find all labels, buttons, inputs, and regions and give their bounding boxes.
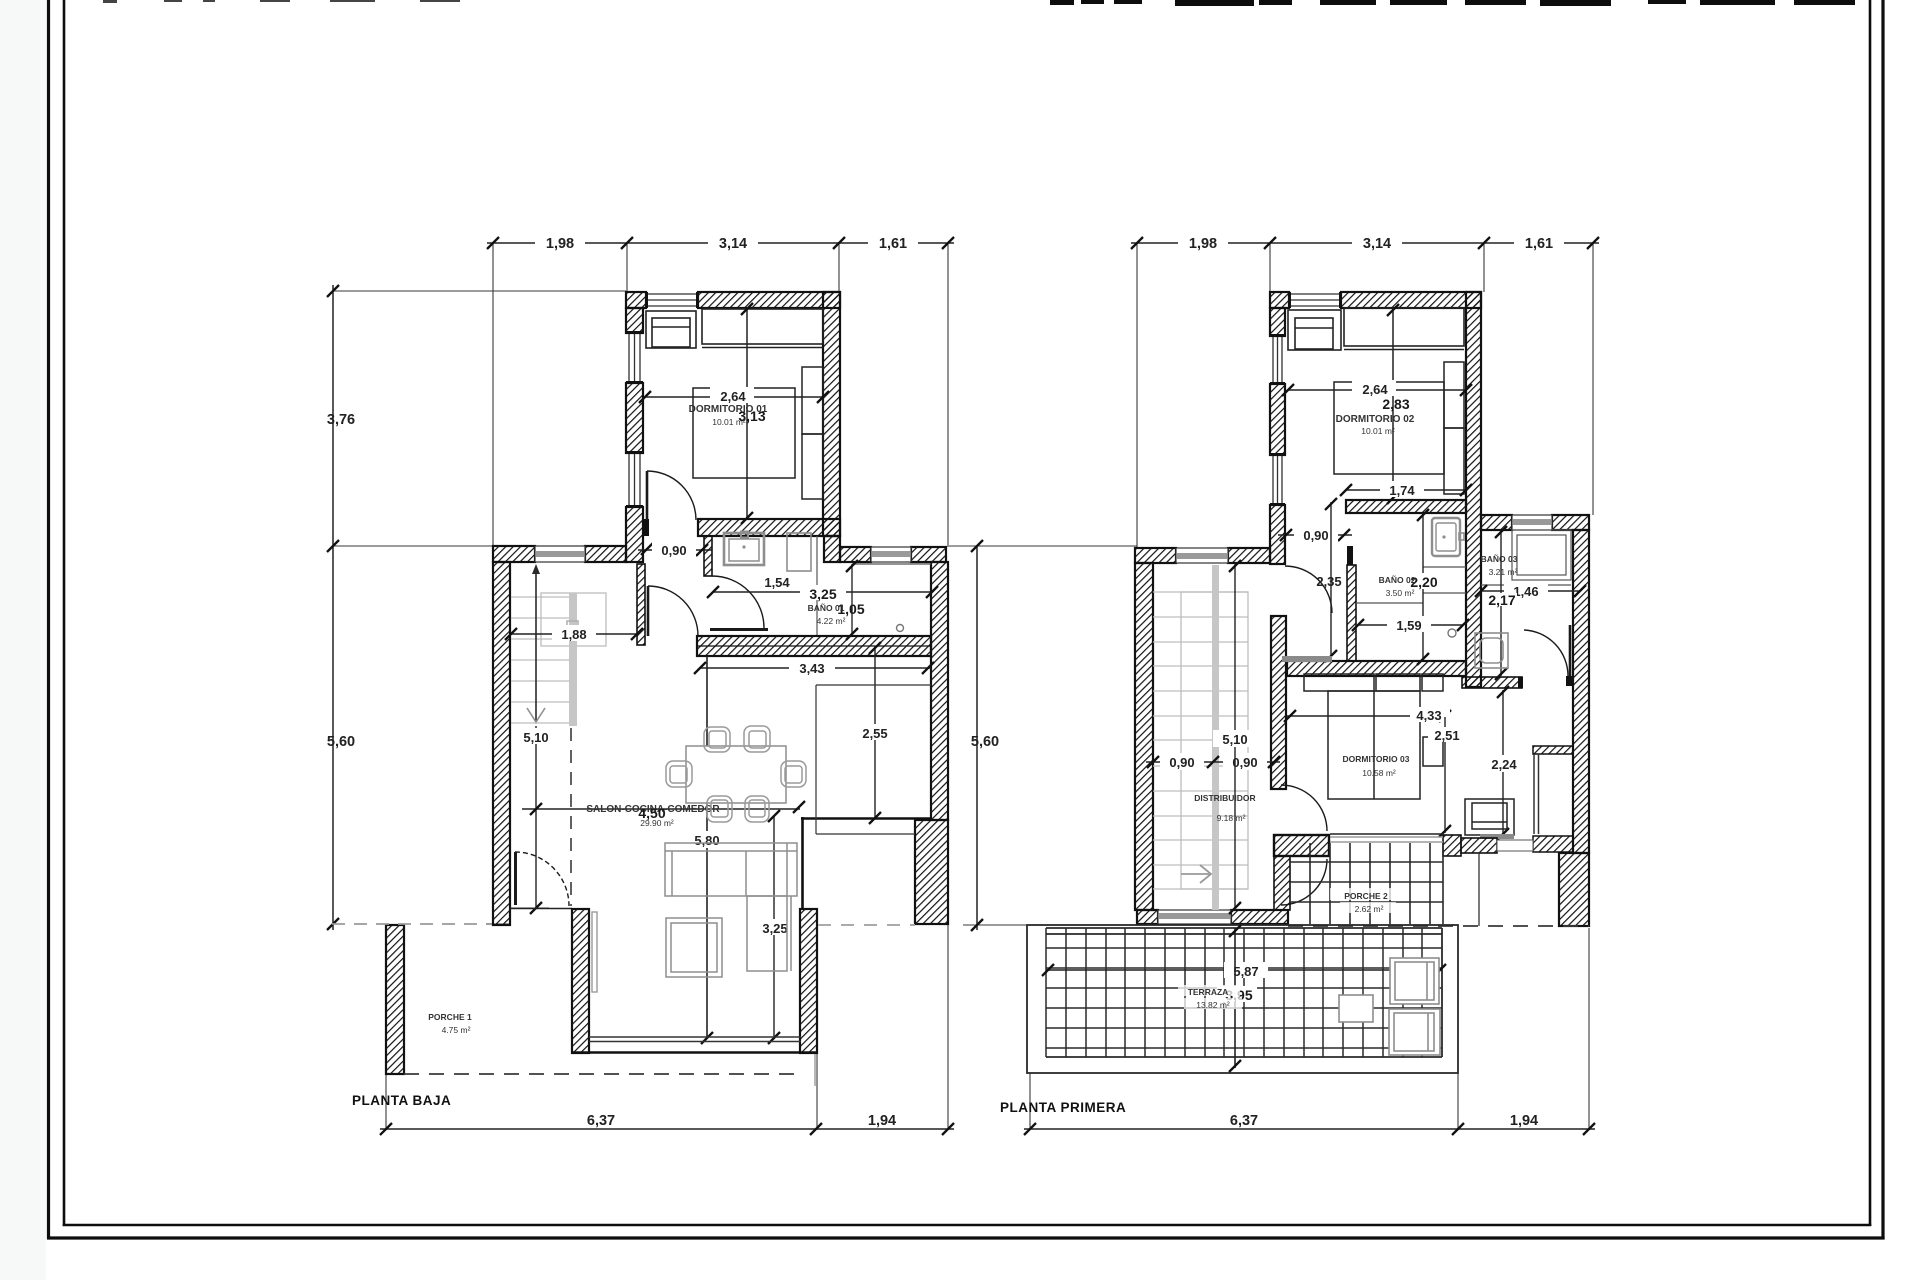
svg-text:BAÑO 03: BAÑO 03 <box>1481 554 1518 564</box>
svg-text:5,10: 5,10 <box>523 730 548 745</box>
svg-text:2,83: 2,83 <box>1382 396 1409 412</box>
svg-text:1,98: 1,98 <box>546 236 574 252</box>
svg-text:5,80: 5,80 <box>694 833 719 848</box>
svg-text:3,14: 3,14 <box>719 236 747 252</box>
svg-text:TERRAZA: TERRAZA <box>1188 987 1229 997</box>
svg-text:9.18 m²: 9.18 m² <box>1217 813 1246 823</box>
svg-text:0,90: 0,90 <box>1303 528 1328 543</box>
svg-text:4.22 m²: 4.22 m² <box>817 616 846 626</box>
svg-text:PORCHE 2: PORCHE 2 <box>1344 891 1388 901</box>
svg-text:1,94: 1,94 <box>868 1113 896 1129</box>
svg-text:5,60: 5,60 <box>971 734 999 750</box>
svg-text:0,90: 0,90 <box>1169 755 1194 770</box>
svg-text:2,64: 2,64 <box>1362 382 1388 397</box>
svg-text:1,88: 1,88 <box>561 627 586 642</box>
svg-text:PLANTA PRIMERA: PLANTA PRIMERA <box>1000 1100 1126 1115</box>
svg-text:1,59: 1,59 <box>1396 618 1421 633</box>
svg-text:5,87: 5,87 <box>1233 964 1258 979</box>
svg-text:5,60: 5,60 <box>327 734 355 750</box>
svg-text:4.75 m²: 4.75 m² <box>442 1025 471 1035</box>
svg-text:2,17: 2,17 <box>1488 592 1515 608</box>
svg-text:1,74: 1,74 <box>1389 483 1415 498</box>
svg-text:DORMITORIO 01: DORMITORIO 01 <box>689 404 768 415</box>
svg-text:2,55: 2,55 <box>862 726 887 741</box>
svg-text:0,90: 0,90 <box>661 543 686 558</box>
svg-text:1,98: 1,98 <box>1189 236 1217 252</box>
svg-text:BAÑO 02: BAÑO 02 <box>1379 575 1416 585</box>
svg-text:DORMITORIO 03: DORMITORIO 03 <box>1343 754 1410 764</box>
svg-text:1,54: 1,54 <box>764 575 790 590</box>
svg-text:1,61: 1,61 <box>879 236 907 252</box>
svg-text:2,51: 2,51 <box>1434 728 1459 743</box>
svg-text:6,37: 6,37 <box>587 1113 615 1129</box>
svg-text:13.82 m²: 13.82 m² <box>1196 1000 1230 1010</box>
svg-text:1,94: 1,94 <box>1510 1113 1538 1129</box>
svg-text:2.62 m²: 2.62 m² <box>1355 904 1384 914</box>
svg-text:10.01 m²: 10.01 m² <box>712 417 746 427</box>
svg-text:3.21 m²: 3.21 m² <box>1489 567 1518 577</box>
svg-text:2,64: 2,64 <box>720 389 746 404</box>
svg-text:0,90: 0,90 <box>1232 755 1257 770</box>
svg-text:1,46: 1,46 <box>1513 584 1538 599</box>
svg-text:3,25: 3,25 <box>809 586 836 602</box>
svg-text:BAÑO 01: BAÑO 01 <box>808 603 845 613</box>
svg-text:3,14: 3,14 <box>1363 236 1391 252</box>
svg-text:5,10: 5,10 <box>1222 732 1247 747</box>
svg-text:DORMITORIO 02: DORMITORIO 02 <box>1336 414 1415 425</box>
svg-text:3,25: 3,25 <box>762 921 787 936</box>
svg-text:DISTRIBUIDOR: DISTRIBUIDOR <box>1194 793 1255 803</box>
svg-text:29.90 m²: 29.90 m² <box>640 818 674 828</box>
svg-text:3.50 m²: 3.50 m² <box>1386 588 1415 598</box>
svg-text:2,35: 2,35 <box>1316 574 1341 589</box>
svg-text:1,61: 1,61 <box>1525 236 1553 252</box>
svg-text:10.58 m²: 10.58 m² <box>1362 768 1396 778</box>
svg-text:2,24: 2,24 <box>1491 757 1517 772</box>
svg-text:10.01 m²: 10.01 m² <box>1361 426 1395 436</box>
svg-text:4,33: 4,33 <box>1416 708 1441 723</box>
svg-text:PLANTA BAJA: PLANTA BAJA <box>352 1093 451 1108</box>
svg-text:3,76: 3,76 <box>327 412 355 428</box>
svg-text:6,37: 6,37 <box>1230 1113 1258 1129</box>
svg-text:3,43: 3,43 <box>799 661 824 676</box>
svg-text:PORCHE 1: PORCHE 1 <box>428 1012 472 1022</box>
